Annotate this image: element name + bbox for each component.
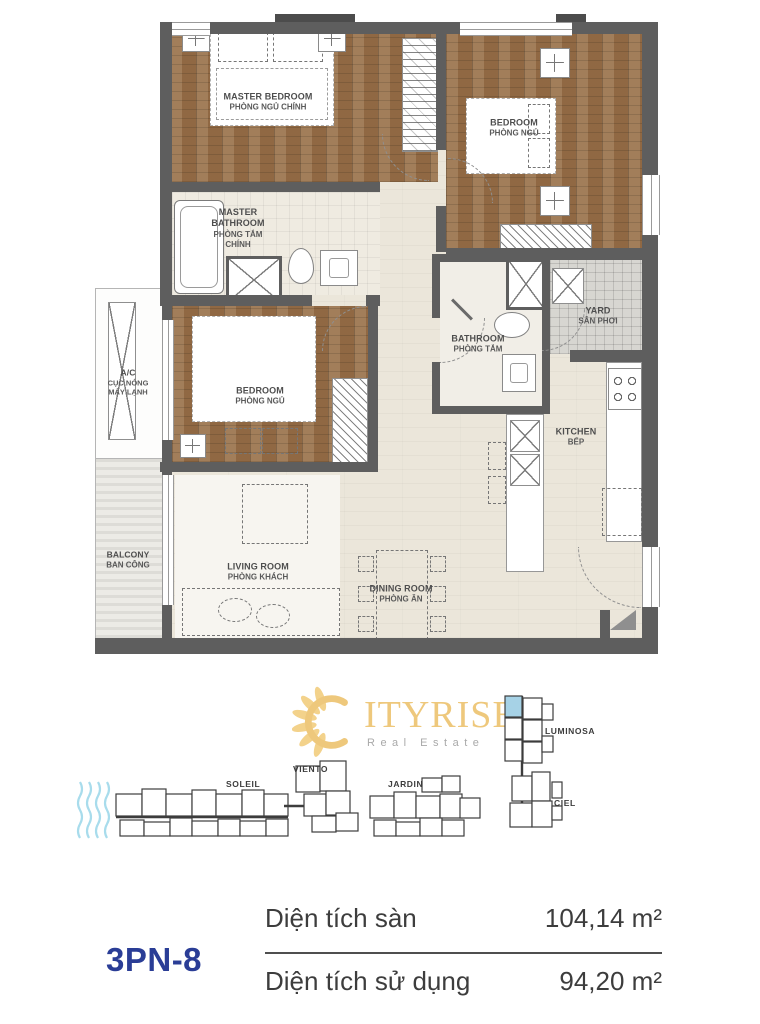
- wall: [95, 638, 658, 654]
- ciel-label: CIEL: [554, 798, 576, 808]
- sink-basin: [329, 258, 349, 277]
- dining-room-label: DINING ROOM PHÒNG ĂN: [369, 583, 432, 604]
- wall: [368, 300, 378, 462]
- window: [162, 320, 174, 440]
- island-chair: [488, 476, 506, 504]
- dining-chair: [358, 616, 374, 632]
- dining-chair: [430, 556, 446, 572]
- bedroom-side-wardrobe: [332, 378, 368, 464]
- balcony-label: BALCONY BAN CÔNG: [106, 550, 150, 571]
- wall: [160, 182, 380, 192]
- highlighted-unit: [505, 696, 522, 717]
- usable-area-label: Diện tích sử dụng: [265, 966, 470, 997]
- wall: [600, 610, 610, 638]
- floor-area-row: Diện tích sàn 104,14 m²: [265, 903, 662, 934]
- floor-area-label: Diện tích sàn: [265, 903, 417, 934]
- washing-machine: [552, 268, 584, 304]
- fridge: [602, 488, 642, 536]
- sofa-cushion: [256, 604, 290, 628]
- usable-area-row: Diện tích sử dụng 94,20 m²: [265, 966, 662, 997]
- jardin-label: JARDIN: [388, 779, 423, 789]
- nightstand: [540, 48, 570, 78]
- wall: [570, 350, 642, 362]
- master-bed-pillow: [218, 32, 268, 62]
- living-room-label: LIVING ROOM PHÒNG KHÁCH: [227, 561, 289, 582]
- master-bathroom-label: MASTER BATHROOM PHÒNG TẮM CHÍNH: [201, 207, 275, 250]
- site-plan: [70, 686, 690, 844]
- page: MASTER BEDROOM PHÒNG NGỦ CHÍNH BEDROOM P…: [0, 0, 760, 1024]
- stove: [608, 368, 642, 410]
- bedroom-top-pillow: [528, 138, 550, 168]
- dining-chair: [430, 616, 446, 632]
- bedroom-side-pillow: [262, 428, 298, 454]
- kitchen-label: KITCHEN BẾP: [556, 426, 597, 447]
- kitchen-sink: [510, 454, 540, 486]
- ac-label: A/C CỤC NÓNG MÁY LẠNH: [108, 367, 149, 396]
- kitchen-sink: [510, 420, 540, 452]
- bedroom-top-label: BEDROOM PHÒNG NGỦ: [489, 117, 538, 138]
- entry-cabinet: [610, 610, 636, 630]
- shaft: [506, 258, 546, 310]
- wall: [160, 462, 378, 472]
- wall: [160, 295, 312, 306]
- nightstand: [180, 434, 206, 458]
- floor-plan: MASTER BEDROOM PHÒNG NGỦ CHÍNH BEDROOM P…: [70, 10, 666, 662]
- viento-label: VIENTO: [293, 764, 328, 774]
- master-bed-pillow: [273, 32, 323, 62]
- yard-label: YARD SÂN PHƠI: [578, 305, 617, 326]
- wall: [160, 22, 172, 305]
- soleil-label: SOLEIL: [226, 779, 260, 789]
- bathroom-label: BATHROOM PHÒNG TẮM: [451, 333, 504, 354]
- luminosa-label: LUMINOSA: [545, 726, 595, 736]
- bathroom-sink: [502, 354, 536, 392]
- sink-basin: [510, 363, 528, 383]
- balcony-sliding-door: [162, 475, 174, 605]
- building-soleil: [116, 789, 288, 836]
- water-waves-icon: [78, 782, 109, 838]
- coffee-table: [242, 484, 308, 544]
- bedroom-side-pillow: [225, 428, 261, 454]
- area-divider: [265, 952, 662, 954]
- island-chair: [488, 442, 506, 470]
- wall: [432, 406, 550, 414]
- wall: [436, 22, 446, 150]
- unit-code: 3PN-8: [106, 941, 202, 979]
- master-bedroom-label: MASTER BEDROOM PHÒNG NGỦ CHÍNH: [224, 91, 313, 112]
- wall: [210, 22, 460, 34]
- master-sink: [320, 250, 358, 286]
- dining-chair: [358, 556, 374, 572]
- wall: [432, 254, 550, 262]
- wall: [432, 262, 440, 318]
- bedroom-side-label: BEDROOM PHÒNG NGỦ: [235, 385, 284, 406]
- nightstand: [540, 186, 570, 216]
- window: [642, 175, 660, 235]
- usable-area-value: 94,20 m²: [559, 966, 662, 997]
- floor-area-value: 104,14 m²: [545, 903, 662, 934]
- wall: [642, 22, 658, 638]
- window: [460, 22, 572, 36]
- wall: [436, 206, 446, 252]
- master-toilet: [288, 248, 314, 284]
- building-jardin: [370, 776, 480, 836]
- entry-door-gap: [642, 547, 660, 607]
- sofa-cushion: [218, 598, 252, 622]
